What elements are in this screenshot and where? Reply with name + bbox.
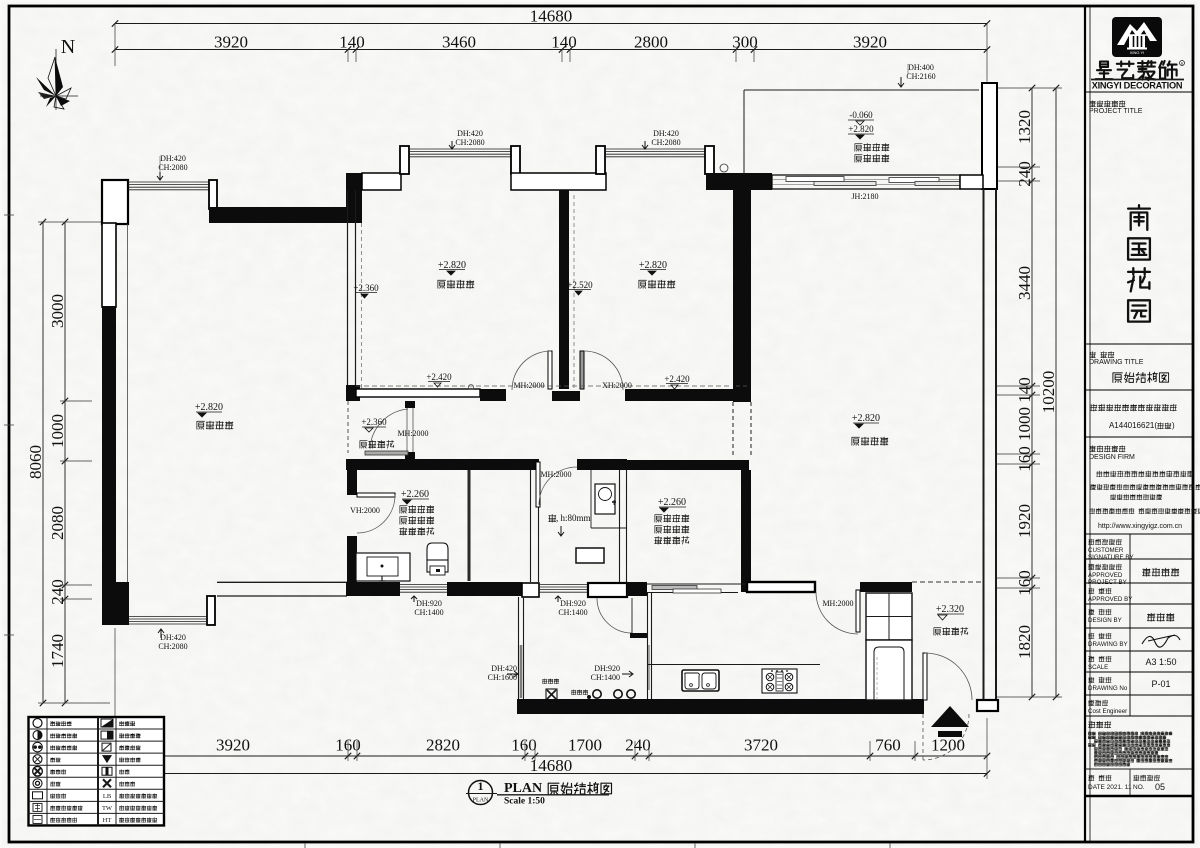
svg-text:MH:2000: MH:2000 [822,599,853,608]
svg-text:CH:2080: CH:2080 [651,138,680,147]
svg-text:Scale 1:50: Scale 1:50 [504,797,545,807]
svg-text:240: 240 [48,579,67,605]
svg-text:3440: 3440 [1015,266,1034,300]
svg-text:14680: 14680 [530,7,573,26]
svg-text:3920: 3920 [214,33,248,52]
svg-text:+2.820: +2.820 [195,402,223,413]
svg-text:1: 1 [478,779,484,793]
svg-text:CUSTOMER: CUSTOMER [1088,547,1124,554]
svg-text:140: 140 [551,33,577,52]
svg-text:1320: 1320 [1015,110,1034,144]
svg-text:+2.260: +2.260 [401,489,429,500]
svg-text:+2.320: +2.320 [936,604,964,615]
svg-text:CH:1400: CH:1400 [558,608,587,617]
svg-text:10200: 10200 [1039,371,1058,414]
svg-text:DH:920: DH:920 [416,599,442,608]
svg-text:+2.420: +2.420 [426,372,452,382]
svg-text:+2.820: +2.820 [848,124,874,134]
svg-text:http://www.xingyigz.com.cn: http://www.xingyigz.com.cn [1098,523,1182,530]
svg-text:APPROVED BY: APPROVED BY [1088,596,1132,603]
svg-text:8060: 8060 [26,445,45,479]
svg-text:+2.420: +2.420 [664,374,690,384]
svg-text:DH:400: DH:400 [908,63,934,72]
svg-text:300: 300 [732,33,758,52]
svg-text:DATE 2021. 11: DATE 2021. 11 [1088,784,1132,791]
svg-text:DH:420: DH:420 [457,129,483,138]
svg-text:DH:420: DH:420 [160,154,186,163]
svg-text:+2.360: +2.360 [353,283,379,293]
svg-text:MH:2000: MH:2000 [540,470,571,479]
svg-text:DH:420: DH:420 [653,129,679,138]
svg-text:A144016621(: A144016621( [1109,421,1157,430]
svg-text:3920: 3920 [216,736,250,755]
svg-text:1000: 1000 [48,414,67,448]
svg-text:XING YI: XING YI [1130,50,1145,55]
svg-text:+2.360: +2.360 [361,417,387,427]
svg-text:+2.260: +2.260 [658,497,686,508]
svg-text:P-01: P-01 [1151,679,1170,689]
svg-text:SCALE: SCALE [1088,664,1108,671]
svg-text:HT: HT [103,817,112,824]
svg-text:NO.: NO. [1133,784,1145,791]
svg-text:PROJECT TITLE: PROJECT TITLE [1089,108,1143,115]
svg-text:2820: 2820 [426,736,460,755]
svg-text:TW: TW [102,805,113,812]
svg-text:1000: 1000 [1015,407,1034,441]
svg-text:, h:80mm: , h:80mm [556,513,591,523]
svg-text:160: 160 [511,736,537,755]
svg-text:): ) [1172,421,1175,430]
svg-text:N: N [61,36,75,58]
svg-text:1200: 1200 [931,736,965,755]
svg-text:DH:420: DH:420 [160,633,186,642]
svg-text:DH:920: DH:920 [560,599,586,608]
svg-text:APPROVED: APPROVED [1088,572,1123,579]
svg-text:DRAWING No: DRAWING No [1088,685,1128,692]
svg-text:DESIGN FIRM: DESIGN FIRM [1089,454,1135,461]
svg-text:DRAWING TITLE: DRAWING TITLE [1089,359,1144,366]
svg-text:240: 240 [625,736,651,755]
svg-text:14680: 14680 [530,756,573,775]
svg-text:DESIGN BY: DESIGN BY [1088,617,1122,624]
svg-text:-0.060: -0.060 [849,110,873,120]
svg-text:240: 240 [1015,161,1034,187]
svg-text:+2.520: +2.520 [567,280,593,290]
svg-text:3920: 3920 [853,33,887,52]
svg-text:Cost Engineer: Cost Engineer [1088,708,1127,715]
svg-text:A3 1:50: A3 1:50 [1145,657,1176,667]
svg-text:760: 760 [875,736,901,755]
svg-text:PROJECT BY: PROJECT BY [1088,579,1127,586]
svg-text:+2.820: +2.820 [852,413,880,424]
svg-text:05: 05 [1155,782,1165,792]
svg-text:3460: 3460 [442,33,476,52]
svg-text:MH:2000: MH:2000 [397,429,428,438]
svg-text:DH:420: DH:420 [491,664,517,673]
svg-text:LB: LB [103,793,112,800]
svg-text:3720: 3720 [744,736,778,755]
svg-text:2080: 2080 [48,506,67,540]
svg-text:MH:2000: MH:2000 [513,381,544,390]
svg-text:SIGNATURE BY: SIGNATURE BY [1088,554,1134,561]
svg-text:PLAN: PLAN [504,781,542,796]
svg-text:CH:1400: CH:1400 [591,673,620,682]
svg-text:140: 140 [339,33,365,52]
svg-text:CH:2160: CH:2160 [906,72,935,81]
svg-text:1920: 1920 [1015,504,1034,538]
svg-text:2800: 2800 [634,33,668,52]
svg-text:CH:2080: CH:2080 [158,642,187,651]
svg-text:160: 160 [1015,446,1034,472]
svg-text:JH:2180: JH:2180 [851,192,878,201]
svg-text:160: 160 [1015,570,1034,596]
svg-text:1820: 1820 [1015,625,1034,659]
svg-text:140: 140 [1015,377,1034,403]
svg-text:XH:2000: XH:2000 [602,381,632,390]
svg-text:3000: 3000 [48,294,67,328]
svg-text:1740: 1740 [48,634,67,668]
svg-text:CH:1400: CH:1400 [414,608,443,617]
svg-text:DH:920: DH:920 [594,664,620,673]
svg-text:CH:2080: CH:2080 [158,163,187,172]
svg-text:DRAWING BY: DRAWING BY [1088,641,1128,648]
svg-text:1700: 1700 [568,736,602,755]
svg-text:PLAN: PLAN [473,798,489,804]
svg-text:XINGYI DECORATION: XINGYI DECORATION [1092,81,1183,91]
svg-text:VH:2000: VH:2000 [350,506,380,515]
svg-text:CH:2080: CH:2080 [455,138,484,147]
